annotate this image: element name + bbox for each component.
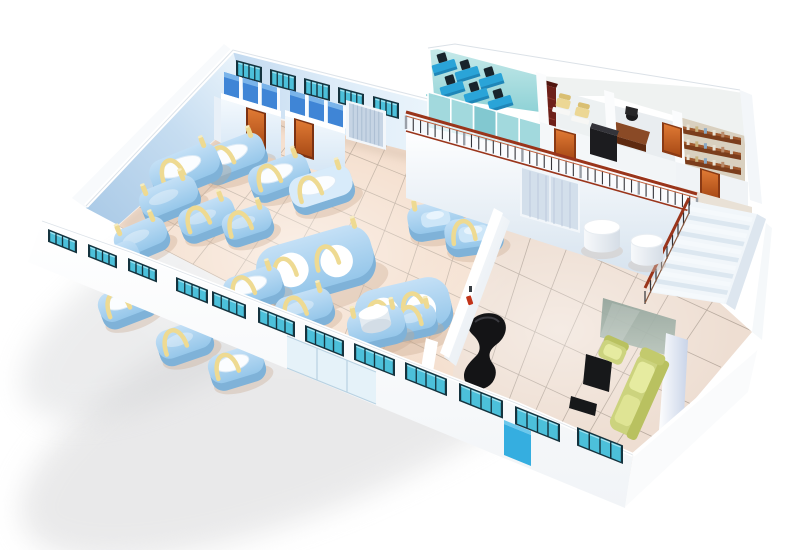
shelf-item xyxy=(730,149,733,155)
stall-divider xyxy=(343,106,346,129)
facility-floorplan xyxy=(0,0,800,550)
office-door xyxy=(664,124,680,155)
shelf-item xyxy=(695,126,698,132)
shelf-item xyxy=(721,147,724,153)
round-table xyxy=(581,219,623,259)
shelf-item xyxy=(695,141,698,147)
table-top xyxy=(631,234,663,247)
wall-fixture xyxy=(469,286,472,292)
shelf-item xyxy=(704,143,707,149)
shelf-item xyxy=(730,134,733,140)
round-table xyxy=(628,234,666,272)
floorplan-stage xyxy=(0,0,800,550)
stall-divider xyxy=(324,100,327,123)
shelf-item xyxy=(721,162,724,168)
shelf-item xyxy=(687,155,690,161)
locker-room-side xyxy=(214,96,221,143)
shelf-item xyxy=(713,145,716,151)
shelf-item xyxy=(687,140,690,146)
stall-divider xyxy=(258,82,261,105)
shelf-item xyxy=(704,158,707,164)
locker-door xyxy=(296,120,312,157)
shelf-item xyxy=(721,132,724,138)
shelf-item xyxy=(713,160,716,166)
shelf-item xyxy=(713,130,716,136)
stall-divider xyxy=(277,88,280,111)
shelf-item xyxy=(730,164,733,170)
stall-divider xyxy=(305,95,308,118)
shelf-item xyxy=(704,128,707,134)
stall-divider xyxy=(239,77,242,100)
table-top xyxy=(584,219,620,234)
shelf-item xyxy=(695,156,698,162)
shelf-item xyxy=(687,125,690,131)
